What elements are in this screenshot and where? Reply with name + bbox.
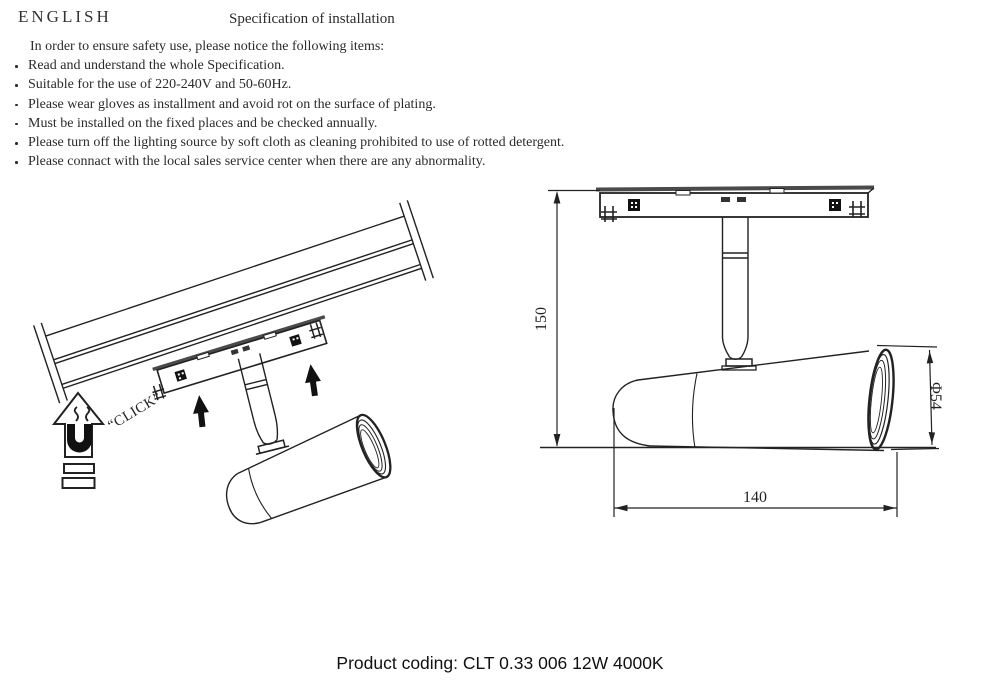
technical-drawings: “CLICK” [0,0,1000,690]
dimension-height: 150 [533,191,600,447]
adapter-bar-side [596,188,874,223]
fixture-stem-side [722,217,756,370]
product-coding: Product coding: CLT 0.33 006 12W 4000K [0,653,1000,674]
spotlight-body [216,411,397,538]
push-direction-arrows [191,363,323,428]
dimension-length: 140 [614,408,897,517]
end-clip-icon [601,201,865,222]
click-label: “CLICK” [105,389,165,434]
magnet-arrow-icon [54,393,103,488]
dimension-drawing: 150 140 Φ54 [533,188,944,518]
height-value: 150 [533,307,550,331]
diameter-value: Φ54 [927,382,944,410]
length-value: 140 [743,489,767,506]
installation-specification-page: ENGLISH Specification of installation In… [0,0,1000,690]
spotlight-body-side [613,349,898,451]
lens-rings [350,411,397,482]
fixture-stem [233,352,289,454]
installation-drawing: “CLICK” [34,200,434,537]
lens-rings-side [864,349,897,451]
